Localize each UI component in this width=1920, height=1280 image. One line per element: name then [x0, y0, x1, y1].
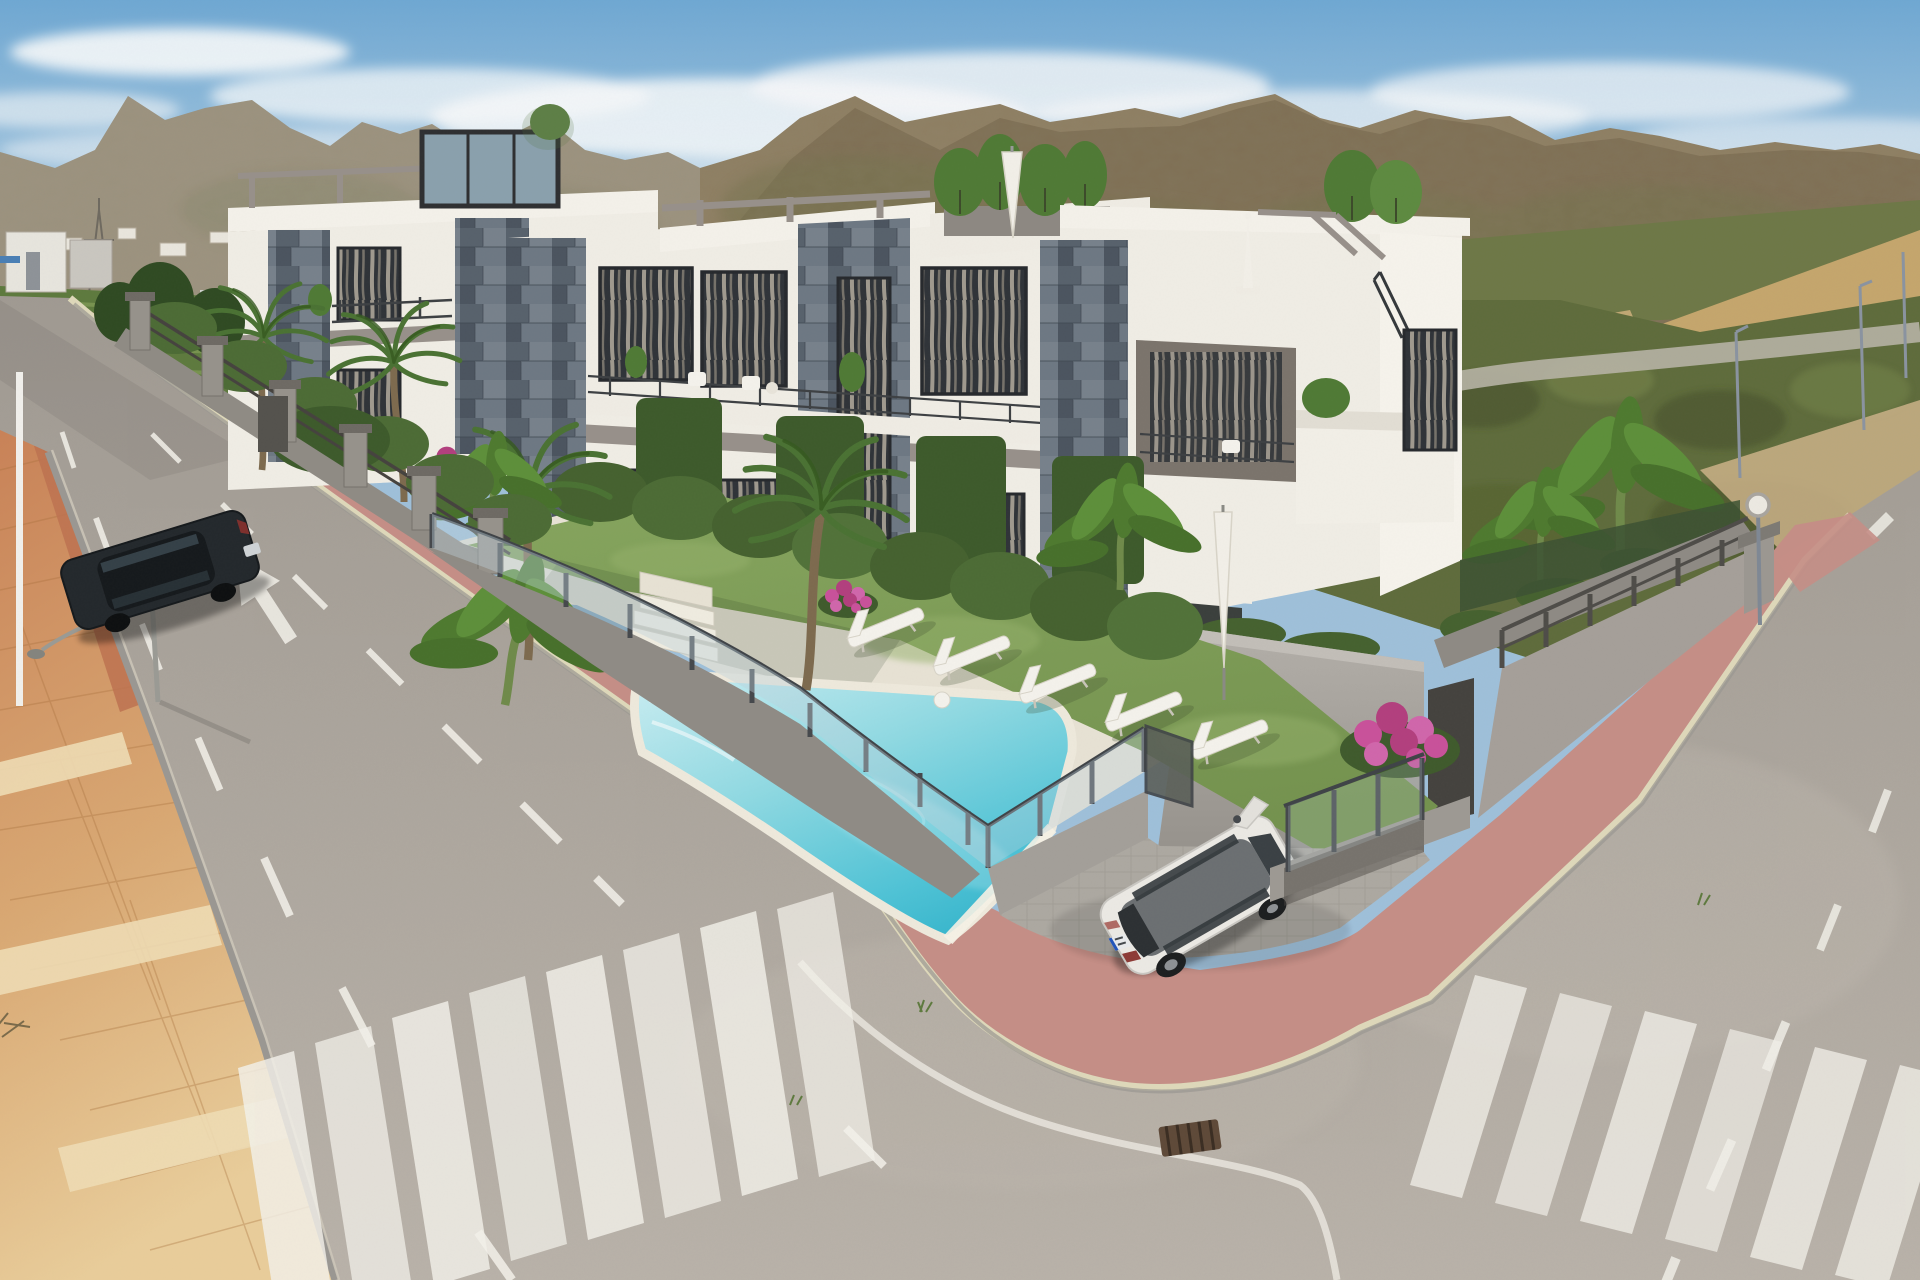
film-grain-overlay [0, 0, 1920, 1280]
render-canvas [0, 0, 1920, 1280]
